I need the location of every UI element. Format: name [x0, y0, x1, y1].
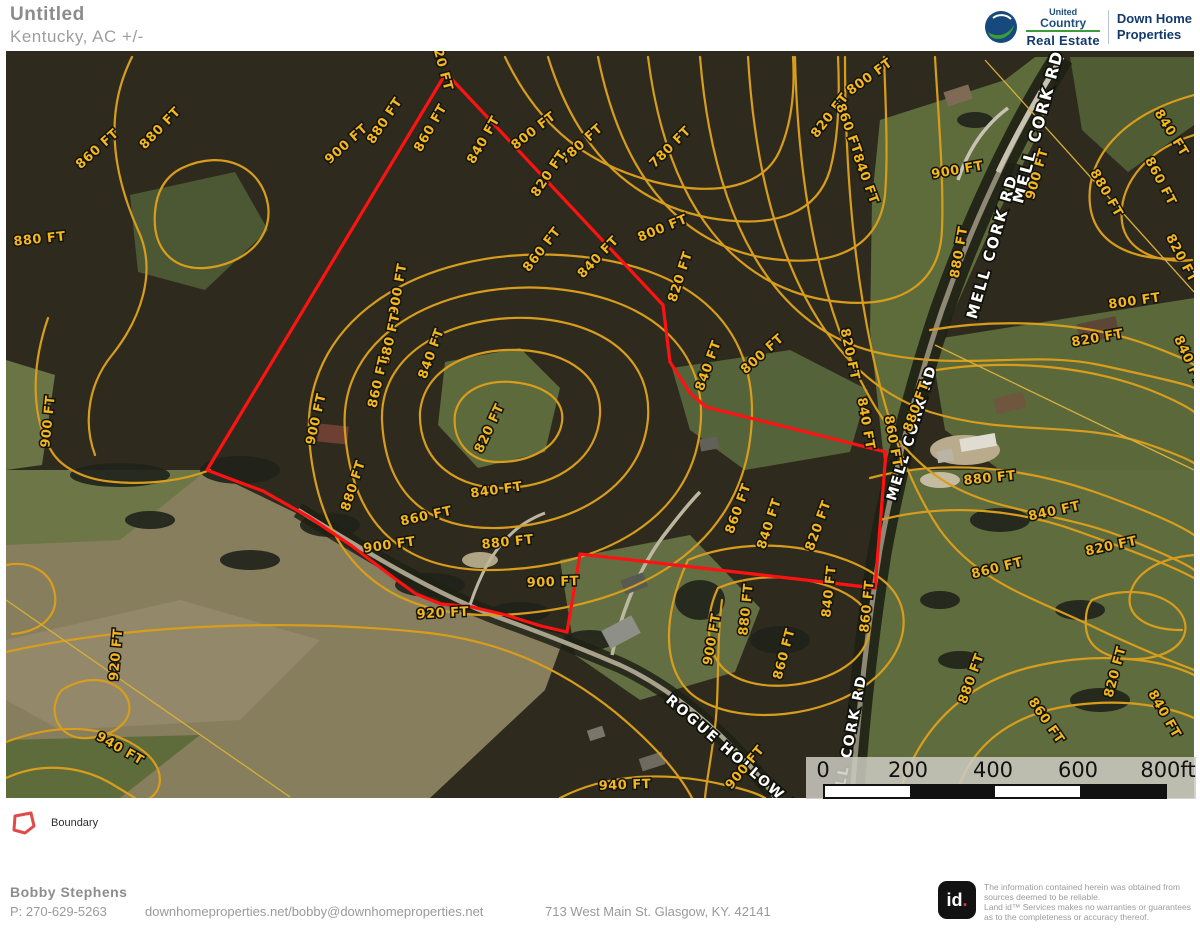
disclaimer-line-3: Land id™ Services makes no warranties or…	[984, 902, 1196, 912]
page-title: Untitled	[10, 4, 85, 26]
disclaimer-text: The information contained herein was obt…	[984, 882, 1196, 922]
scale-label-800: 800ft	[1140, 758, 1195, 782]
agent-address: 713 West Main St. Glasgow, KY. 42141	[545, 904, 771, 919]
contour-label: 940 FT	[598, 777, 651, 794]
scale-label-200: 200	[888, 758, 928, 782]
land-id-logo-text: id	[946, 890, 962, 911]
land-id-logo: id.	[938, 881, 976, 919]
united-country-logo-text: United Country Real Estate	[1026, 8, 1099, 47]
disclaimer-line-2: sources deemed to be reliable.	[984, 892, 1196, 902]
scale-label-0: 0	[816, 758, 829, 782]
united-country-globe-icon	[984, 10, 1018, 44]
contour-label: 900 FT	[526, 574, 579, 591]
agent-phone: P: 270-629-5263	[10, 904, 107, 919]
brand-block: United Country Real Estate Down Home Pro…	[984, 6, 1192, 48]
partner-line2: Properties	[1117, 27, 1192, 43]
uc-line2: Country	[1026, 17, 1099, 32]
map-canvas[interactable]: MELL CORK RDMELL CORK RDMELL CORK RDMELL…	[6, 51, 1194, 798]
disclaimer-line-1: The information contained herein was obt…	[984, 882, 1196, 892]
brand-divider	[1108, 10, 1109, 44]
contour-label: 920 FT	[416, 605, 469, 623]
agent-website[interactable]: downhomeproperties.net/bobby@downhomepro…	[145, 904, 483, 919]
legend: Boundary	[10, 810, 98, 836]
uc-line3: Real Estate	[1026, 34, 1099, 47]
agent-name: Bobby Stephens	[10, 884, 127, 900]
page-subtitle: Kentucky, AC +/-	[10, 27, 144, 47]
partner-logo-text: Down Home Properties	[1117, 11, 1192, 42]
scale-bar-segments	[823, 784, 1167, 799]
scale-label-400: 400	[973, 758, 1013, 782]
disclaimer-line-4: as to the completeness or accuracy there…	[984, 912, 1196, 922]
boundary-legend-icon	[10, 810, 37, 836]
partner-line1: Down Home	[1117, 11, 1192, 27]
scale-bar: 0 200 400 600 800ft	[806, 757, 1196, 799]
legend-boundary-label: Boundary	[51, 817, 98, 829]
page: { "header": { "title": "Untitled", "subt…	[0, 0, 1200, 928]
scale-label-600: 600	[1058, 758, 1098, 782]
